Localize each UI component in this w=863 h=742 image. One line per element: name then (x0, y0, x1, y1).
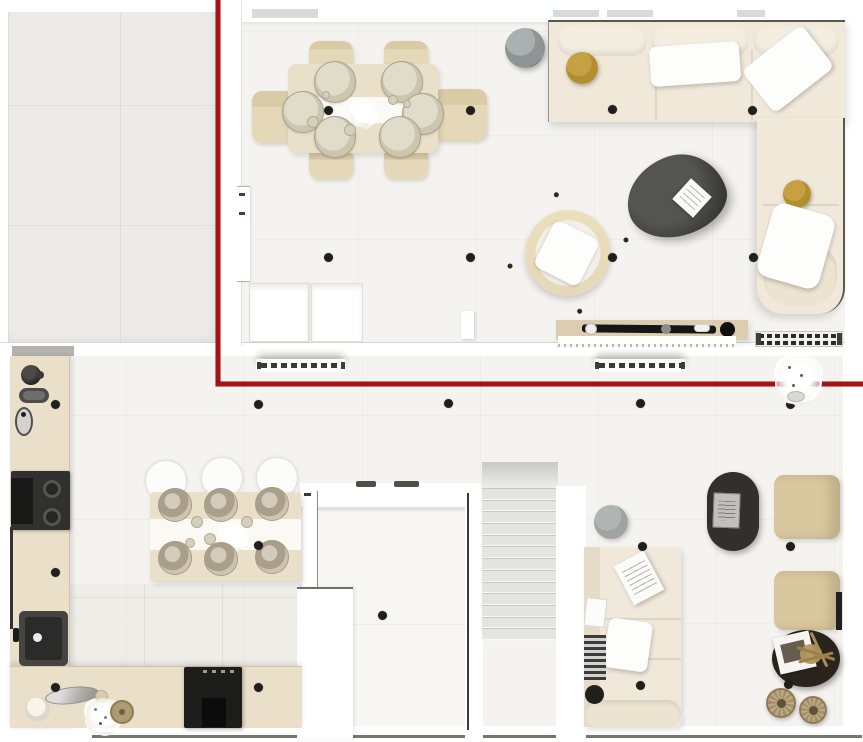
white-bowl (25, 697, 50, 722)
small-bowl (204, 533, 216, 545)
hall-left-wall (303, 491, 318, 588)
stove-knob (230, 670, 234, 673)
small-bowl (241, 516, 253, 528)
armchair-shadow-edge (836, 592, 842, 630)
radiator-cap (595, 362, 599, 369)
white-pillow (649, 41, 742, 87)
speaker-disc (585, 323, 597, 335)
ceiling-light-dot (786, 542, 795, 551)
floor-plan-render (0, 0, 863, 742)
mustard-pillow (566, 52, 598, 84)
upper-left-wall (218, 0, 242, 346)
plate (255, 487, 289, 521)
radiator-cap (257, 362, 261, 369)
black-side-table (585, 685, 604, 704)
hall-top-cabinet (300, 483, 481, 507)
wicker-pouf (799, 696, 827, 724)
ceiling-light-dot (51, 568, 60, 577)
lower-bottom-wall (0, 726, 863, 742)
book-on-armrest (584, 597, 608, 628)
sideboard-cabinet (311, 283, 363, 342)
pouf-center (777, 699, 786, 708)
window-segment (252, 9, 318, 18)
staircase (482, 488, 558, 640)
ceiling-light-dot (324, 253, 333, 262)
pouf-center (809, 706, 818, 715)
ceiling-light-dot (254, 683, 263, 692)
ceiling-light-dot (51, 683, 60, 692)
armchair (774, 571, 840, 630)
radiator (594, 359, 686, 372)
ceiling-light-dot (378, 611, 387, 620)
ceiling-light-dot (466, 253, 475, 262)
flower-speck (99, 722, 102, 725)
burner (43, 508, 61, 526)
plant-speck (792, 384, 795, 387)
grille-cap (837, 333, 842, 345)
wicker-pouf (766, 688, 796, 718)
small-bowl (344, 124, 356, 136)
grille-dashes (759, 341, 841, 345)
sofa-armrest (584, 700, 681, 727)
burner (43, 480, 61, 498)
radiator-cap (341, 362, 345, 369)
door-hinge-mark (239, 212, 245, 215)
lower-right-wall (843, 344, 863, 742)
grille-cap (756, 333, 761, 345)
sideboard-cabinet (249, 283, 309, 342)
grille-dashes (759, 334, 841, 338)
ceiling-light-dot (608, 105, 617, 114)
ceiling-light-dot (444, 399, 453, 408)
ceiling-light-dot (51, 400, 60, 409)
door-hinge-mark (239, 193, 245, 196)
stair-wall-edge-line (467, 493, 469, 730)
stove-knob (212, 670, 216, 673)
gray-pouf (594, 505, 628, 539)
plant-speck (800, 374, 803, 377)
sofa-back-cushion (557, 26, 647, 56)
cabinet-vent-slot (356, 481, 376, 487)
plate (158, 488, 192, 522)
stair-tread (482, 628, 558, 641)
decor-white-pill (694, 324, 710, 332)
decor-gray-disc (661, 324, 671, 334)
ceiling-light-dot (608, 253, 617, 262)
counter-edge-line (10, 527, 13, 629)
stairs-landing (482, 462, 558, 488)
plant-speck (788, 366, 791, 369)
radiator-cap (681, 362, 685, 369)
stair-side-wall-right (556, 486, 586, 740)
small-bowl (388, 95, 398, 105)
ceiling-light-dot (748, 106, 757, 115)
plate (314, 116, 356, 158)
ceiling-light-dot (784, 680, 793, 689)
laptop (712, 493, 740, 529)
plate (204, 542, 238, 576)
cooktop-hood (11, 478, 33, 524)
plate (204, 488, 238, 522)
small-bowl (307, 116, 319, 128)
ceiling-light-dot (749, 253, 758, 262)
flower-speck (94, 708, 97, 711)
round-side-table (505, 28, 545, 68)
flower-speck (104, 716, 107, 719)
stove-knob (203, 670, 207, 673)
ceiling-light-dot (466, 106, 475, 115)
upper-right-wall (845, 0, 863, 346)
cabinet-vent-slot (394, 481, 419, 487)
stove-knob (221, 670, 225, 673)
plant-pot (787, 391, 805, 402)
small-bowl (185, 538, 195, 548)
dining-chair (437, 89, 487, 141)
small-bowl (191, 516, 203, 528)
annotation-horizontal-line (216, 382, 863, 386)
window-segment (553, 10, 599, 17)
radiator-dashes (261, 363, 341, 368)
window-segment (737, 10, 765, 17)
ceiling-light-dot (636, 399, 645, 408)
tray-capsule-inner (23, 391, 45, 400)
rug-fringe-edge (558, 336, 736, 344)
book-stack (584, 635, 606, 680)
ceiling-light-dot (254, 541, 263, 550)
ceiling-light-dot (324, 106, 333, 115)
upper-inner-wall (237, 186, 250, 282)
ceiling-light-dot (638, 542, 647, 551)
window-segment (607, 10, 653, 17)
sink-basin (25, 617, 62, 660)
stove-inner (202, 698, 226, 727)
plate (314, 61, 356, 103)
sink-handle (13, 628, 19, 642)
sink-faucet (33, 633, 42, 642)
plate (379, 116, 421, 158)
small-pillar (461, 311, 474, 339)
door-hinge-mark (304, 493, 311, 496)
radiator-dashes (599, 363, 681, 368)
kitchen-tile-floor (66, 584, 302, 668)
canister-center (119, 709, 125, 715)
small-bowl (322, 91, 330, 99)
white-pillow (603, 617, 654, 673)
upper-left-room-floor (8, 12, 218, 346)
kettle-handle (36, 371, 44, 379)
floor-vent-grille (755, 331, 843, 347)
annotation-vertical-line (216, 0, 220, 386)
faucet-dot (21, 412, 26, 417)
black-knob (720, 322, 735, 337)
ceiling-light-dot (254, 400, 263, 409)
ceiling-light-dot (636, 681, 645, 690)
radiator (256, 359, 346, 372)
table-centerpiece-flowers (352, 99, 376, 125)
armchair (774, 475, 840, 539)
hall-closet (297, 587, 353, 740)
small-bowl (403, 100, 411, 108)
